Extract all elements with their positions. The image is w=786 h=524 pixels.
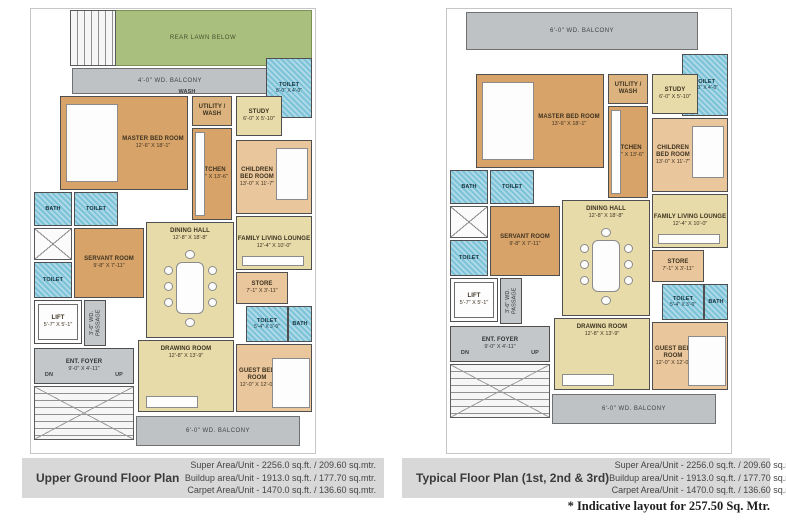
chair-icon bbox=[164, 266, 173, 275]
bed-icon bbox=[692, 126, 724, 178]
dn-label-label: DN bbox=[45, 372, 53, 378]
dn-label-label: DN bbox=[461, 350, 469, 356]
bottom-balcony-label: 6'-0" WD. BALCONY bbox=[602, 406, 666, 413]
store-dims: 7'-1" X 3'-11" bbox=[662, 266, 693, 273]
chair-icon bbox=[624, 244, 633, 253]
buildup-area: Buildup area/Unit - 1913.0 sq.ft. / 177.… bbox=[609, 472, 786, 485]
family-living-lounge-dims: 12'-4" X 10'-0" bbox=[673, 221, 708, 228]
bath: BATH bbox=[704, 284, 728, 320]
bed-icon bbox=[482, 82, 534, 160]
entrance-foyer-label: ENT. FOYER bbox=[66, 359, 102, 366]
toilet: TOILET5'-4" X 3'-0" bbox=[662, 284, 704, 320]
indicative-layout-note: * Indicative layout for 257.50 Sq. Mtr. bbox=[568, 499, 770, 514]
utility-wash: UTILITY / WASH bbox=[608, 74, 648, 104]
master-bed-room-dims: 12'-6" X 18'-1" bbox=[136, 143, 171, 150]
toilet-dims: 8'-0" X 4'-0" bbox=[276, 88, 302, 94]
sofa-icon bbox=[146, 396, 198, 408]
staircase-bottom bbox=[34, 386, 134, 440]
dining-hall-dims: 12'-8" X 18'-8" bbox=[589, 213, 624, 220]
servant-room: SERVANT ROOM9'-8" X 7'-11" bbox=[490, 206, 560, 276]
utility-wash: UTILITY / WASH bbox=[192, 96, 232, 126]
store-label: STORE bbox=[251, 281, 272, 288]
passage-label: 3'-6" WD. PASSAGE bbox=[505, 279, 518, 323]
chair-icon bbox=[208, 266, 217, 275]
plan-areas: Super Area/Unit - 2256.0 sq.ft. / 209.60… bbox=[609, 459, 786, 497]
upper-ground-floor-plan: REAR LAWN BELOW4'-0" WD. BALCONYWASHTOIL… bbox=[30, 8, 316, 454]
chair-icon bbox=[580, 244, 589, 253]
chair-icon bbox=[208, 298, 217, 307]
utility-wash-label: UTILITY / WASH bbox=[193, 104, 231, 118]
guest-bed-room-label: GUEST BED ROOM bbox=[237, 368, 277, 382]
lift-label: LIFT bbox=[467, 293, 480, 300]
master-bed-room-dims: 13'-6" X 18'-1" bbox=[552, 121, 587, 128]
dining-hall-label: DINING HALL bbox=[586, 206, 626, 213]
drawing-room-dims: 12'-8" X 13'-9" bbox=[585, 331, 620, 338]
sofa-icon bbox=[562, 374, 614, 386]
lift-label: LIFT bbox=[51, 315, 64, 322]
sofa-icon bbox=[658, 234, 720, 244]
toilet: TOILET5'-4" X 3'-0" bbox=[246, 306, 288, 342]
super-area: Super Area/Unit - 2256.0 sq.ft. / 209.60… bbox=[185, 459, 376, 472]
toilet: TOILET bbox=[450, 240, 488, 276]
master-bed-room-label: MASTER BED ROOM bbox=[538, 114, 600, 121]
bath: BATH bbox=[450, 170, 488, 204]
lift-dims: 5'-7" X 5'-1" bbox=[460, 300, 489, 307]
caption-typical-floor: Typical Floor Plan (1st, 2nd & 3rd) Supe… bbox=[402, 458, 770, 498]
guest-bed-room-dims: 12'-0" X 12'-0" bbox=[656, 360, 691, 367]
sofa-icon bbox=[242, 256, 304, 266]
chair-icon bbox=[208, 282, 217, 291]
up-label-label: UP bbox=[531, 350, 539, 356]
entrance-foyer-dims: 9'-0" X 4'-11" bbox=[484, 344, 515, 351]
bottom-balcony: 6'-0" WD. BALCONY bbox=[136, 416, 300, 446]
entrance-foyer-label: ENT. FOYER bbox=[482, 337, 518, 344]
children-bed-room-label: CHILDREN BED ROOM bbox=[237, 167, 277, 181]
bath-label: BATH bbox=[45, 206, 60, 212]
children-bed-room-dims: 13'-0" X 11'-7" bbox=[656, 159, 690, 166]
store-dims: 7'-1" X 3'-11" bbox=[246, 288, 277, 295]
toilet: TOILET bbox=[490, 170, 534, 204]
chair-icon bbox=[185, 318, 195, 327]
bath: BATH bbox=[34, 192, 72, 226]
children-bed-room-dims: 13'-0" X 11'-7" bbox=[240, 181, 274, 188]
bed-icon bbox=[276, 148, 308, 200]
family-living-lounge-label: FAMILY LIVING LOUNGE bbox=[654, 214, 726, 221]
children-bed-room-label: CHILDREN BED ROOM bbox=[653, 145, 693, 159]
study: STUDY6'-0" X 5'-10" bbox=[236, 96, 282, 136]
plan-title: Upper Ground Floor Plan bbox=[22, 471, 179, 485]
bath-label: BATH bbox=[292, 321, 307, 327]
bath: BATH bbox=[288, 306, 312, 342]
passage: 3'-6" WD. PASSAGE bbox=[84, 300, 106, 346]
chair-icon bbox=[580, 276, 589, 285]
toilet-label: TOILET bbox=[502, 184, 522, 190]
servant-room-dims: 9'-8" X 7'-11" bbox=[93, 263, 124, 270]
up-label: UP bbox=[110, 370, 128, 380]
dining-hall-label: DINING HALL bbox=[170, 228, 210, 235]
top-balcony: 6'-0" WD. BALCONY bbox=[466, 12, 698, 50]
lift: LIFT5'-7" X 5'-1" bbox=[34, 300, 82, 344]
shaft bbox=[34, 228, 72, 260]
wash-label-label: WASH bbox=[179, 89, 196, 95]
master-bed-room-label: MASTER BED ROOM bbox=[122, 136, 184, 143]
toilet: TOILET bbox=[34, 262, 72, 298]
study-label: STUDY bbox=[665, 87, 686, 94]
brochure-page: REAR LAWN BELOW4'-0" WD. BALCONYWASHTOIL… bbox=[0, 0, 786, 524]
dining-table-icon bbox=[176, 262, 204, 314]
chair-icon bbox=[624, 276, 633, 285]
staircase-bottom bbox=[450, 364, 550, 418]
rear-lawn-label: REAR LAWN BELOW bbox=[170, 35, 236, 42]
bed-icon bbox=[272, 358, 310, 408]
lift-dims: 5'-7" X 5'-1" bbox=[44, 322, 73, 329]
drawing-room-dims: 12'-8" X 13'-9" bbox=[169, 353, 204, 360]
chair-icon bbox=[580, 260, 589, 269]
servant-room-dims: 9'-8" X 7'-11" bbox=[509, 241, 540, 248]
chair-icon bbox=[164, 298, 173, 307]
bottom-balcony-label: 6'-0" WD. BALCONY bbox=[186, 428, 250, 435]
bath-label: BATH bbox=[461, 184, 476, 190]
drawing-room-label: DRAWING ROOM bbox=[577, 324, 628, 331]
store-label: STORE bbox=[667, 259, 688, 266]
up-label-label: UP bbox=[115, 372, 123, 378]
passage-label: 3'-6" WD. PASSAGE bbox=[89, 301, 102, 345]
toilet-dims: 5'-4" X 3'-0" bbox=[254, 324, 280, 330]
bed-icon bbox=[688, 336, 726, 386]
plan-title: Typical Floor Plan (1st, 2nd & 3rd) bbox=[402, 471, 609, 485]
typical-floor-plan: 6'-0" WD. BALCONYTOILET8'-0" X 4'-0"MAST… bbox=[446, 8, 732, 454]
shaft bbox=[450, 206, 488, 238]
toilet: TOILET bbox=[74, 192, 118, 226]
staircase-top bbox=[70, 10, 116, 66]
up-label: UP bbox=[526, 348, 544, 358]
servant-room-label: SERVANT ROOM bbox=[84, 256, 134, 263]
entrance-foyer-dims: 9'-0" X 4'-11" bbox=[68, 366, 99, 373]
family-living-lounge-label: FAMILY LIVING LOUNGE bbox=[238, 236, 310, 243]
bath-label: BATH bbox=[708, 299, 723, 305]
dining-hall-dims: 12'-8" X 18'-8" bbox=[173, 235, 208, 242]
chair-icon bbox=[601, 296, 611, 305]
bed-icon bbox=[66, 104, 118, 182]
bottom-balcony: 6'-0" WD. BALCONY bbox=[552, 394, 716, 424]
study-dims: 6'-0" X 5'-10" bbox=[659, 94, 691, 101]
guest-bed-room-dims: 12'-0" X 12'-0" bbox=[240, 382, 275, 389]
servant-room: SERVANT ROOM9'-8" X 7'-11" bbox=[74, 228, 144, 298]
family-living-lounge-dims: 12'-4" X 10'-0" bbox=[257, 243, 292, 250]
utility-wash-label: UTILITY / WASH bbox=[609, 82, 647, 96]
guest-bed-room-label: GUEST BED ROOM bbox=[653, 346, 693, 360]
top-balcony-label: 6'-0" WD. BALCONY bbox=[550, 28, 614, 35]
store: STORE7'-1" X 3'-11" bbox=[652, 250, 704, 282]
caption-upper-ground: Upper Ground Floor Plan Super Area/Unit … bbox=[22, 458, 384, 498]
toilet-label: TOILET bbox=[459, 255, 479, 261]
dn-label: DN bbox=[40, 370, 58, 380]
dining-table-icon bbox=[592, 240, 620, 292]
dn-label: DN bbox=[456, 348, 474, 358]
plan-areas: Super Area/Unit - 2256.0 sq.ft. / 209.60… bbox=[185, 459, 384, 497]
servant-room-label: SERVANT ROOM bbox=[500, 234, 550, 241]
study-label: STUDY bbox=[249, 109, 270, 116]
study-dims: 6'-0" X 5'-10" bbox=[243, 116, 275, 123]
kitchen-counter-icon bbox=[195, 132, 205, 216]
lift: LIFT5'-7" X 5'-1" bbox=[450, 278, 498, 322]
passage: 3'-6" WD. PASSAGE bbox=[500, 278, 522, 324]
chair-icon bbox=[185, 250, 195, 259]
kitchen-counter-icon bbox=[611, 110, 621, 194]
buildup-area: Buildup area/Unit - 1913.0 sq.ft. / 177.… bbox=[185, 472, 376, 485]
store: STORE7'-1" X 3'-11" bbox=[236, 272, 288, 304]
toilet-label: TOILET bbox=[43, 277, 63, 283]
chair-icon bbox=[601, 228, 611, 237]
super-area: Super Area/Unit - 2256.0 sq.ft. / 209.60… bbox=[609, 459, 786, 472]
top-balcony-label: 4'-0" WD. BALCONY bbox=[138, 78, 202, 85]
drawing-room-label: DRAWING ROOM bbox=[161, 346, 212, 353]
toilet-label: TOILET bbox=[86, 206, 106, 212]
toilet-dims: 5'-4" X 3'-0" bbox=[670, 302, 696, 308]
chair-icon bbox=[624, 260, 633, 269]
study: STUDY6'-0" X 5'-10" bbox=[652, 74, 698, 114]
carpet-area: Carpet Area/Unit - 1470.0 sq.ft. / 136.6… bbox=[609, 484, 786, 497]
carpet-area: Carpet Area/Unit - 1470.0 sq.ft. / 136.6… bbox=[185, 484, 376, 497]
chair-icon bbox=[164, 282, 173, 291]
